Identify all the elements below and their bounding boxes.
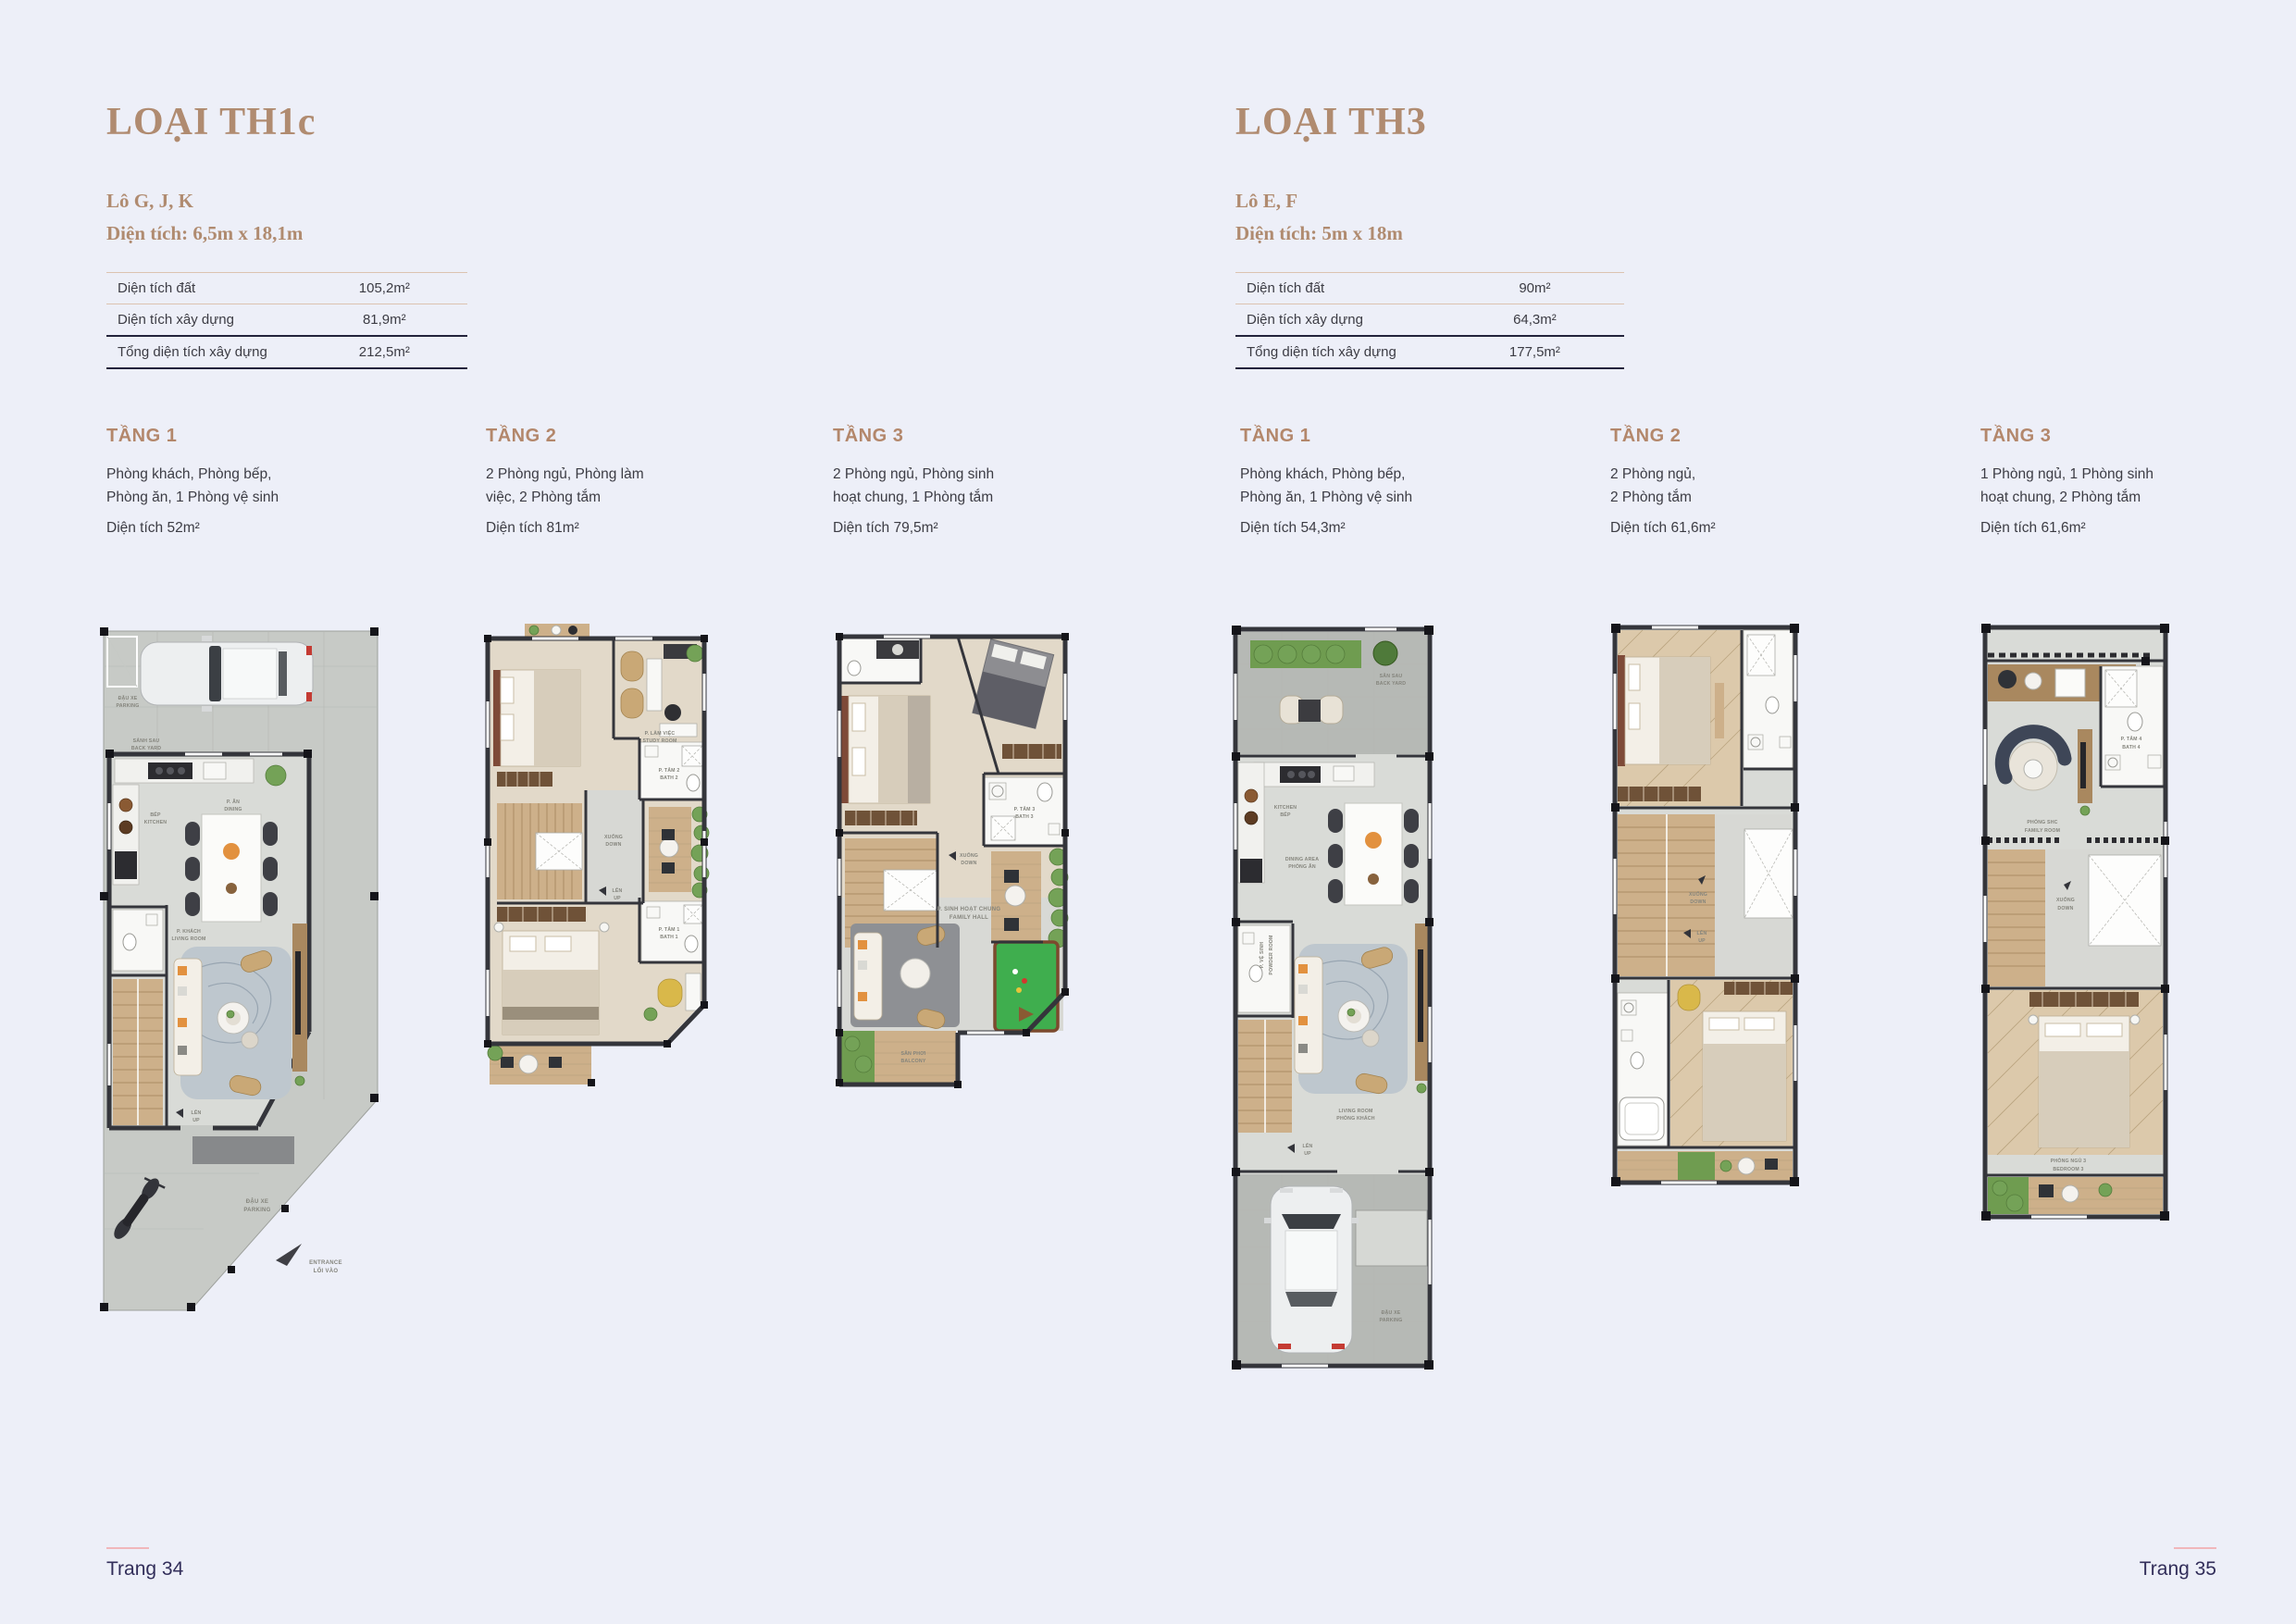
svg-text:PARKING: PARKING	[117, 703, 140, 709]
floor-name: TẦNG 1	[1240, 426, 1490, 447]
row-value: 90m²	[1446, 280, 1624, 296]
rear-balcony	[1618, 1151, 1793, 1181]
svg-text:BATH 4: BATH 4	[2122, 745, 2141, 750]
billiards-table	[995, 942, 1058, 1031]
terrace-mat	[192, 1136, 294, 1164]
floor-plan-th1c-tang2: P. LÀM VIỆC STUDY ROOM P. TẮM 2 BATH 2 X…	[477, 618, 715, 1107]
floor-plan-th3-tang1: SÂN SAU BACK YARD KITCHEN BẾP DINING ARE…	[1226, 618, 1439, 1377]
svg-text:UP: UP	[192, 1118, 200, 1123]
svg-text:UP: UP	[614, 896, 621, 901]
bathroom-1	[1744, 630, 1793, 769]
floor-area: Diện tích 61,6m²	[1610, 520, 1860, 537]
svg-text:BACK YARD: BACK YARD	[131, 746, 161, 751]
up-label: LÊN	[192, 1109, 202, 1116]
section-title-th3: LOẠI TH3	[1235, 100, 1427, 144]
parking-top-label: ĐẬU XE	[118, 695, 138, 701]
svg-text:PARKING: PARKING	[1380, 1318, 1403, 1323]
floor-name: TẦNG 1	[106, 426, 356, 447]
entrance-arrow-icon	[276, 1244, 302, 1266]
table-row: Tổng diện tích xây dựng 212,5m²	[106, 335, 467, 367]
table-row: Tổng diện tích xây dựng 177,5m²	[1235, 335, 1624, 367]
family-hall	[850, 924, 960, 1030]
svg-text:POWDER ROOM: POWDER ROOM	[1269, 935, 1274, 974]
down-label: XUỐNG	[960, 852, 978, 859]
bedroom3-label: PHÒNG NGỦ 3	[2051, 1157, 2087, 1164]
living-room	[174, 947, 292, 1099]
svg-text:FAMILY ROOM: FAMILY ROOM	[2025, 828, 2060, 834]
floor-plan-th3-tang3: P. TẮM 4 BATH 4 PHÒNG SHC FAMILY ROOM XU…	[1976, 618, 2175, 1224]
brochure-spread: LOẠI TH1c Lô G, J, K Diện tích: 6,5m x 1…	[0, 0, 2296, 1624]
svg-text:PARKING: PARKING	[243, 1208, 270, 1213]
svg-text:BATH 3: BATH 3	[1015, 814, 1034, 820]
kitchen-label: BẾP	[150, 812, 161, 818]
up-label: LÊN	[613, 886, 623, 894]
svg-text:UP: UP	[1698, 938, 1706, 944]
tv-cabinet	[1415, 924, 1428, 1093]
plant	[266, 765, 286, 786]
svg-text:DINING: DINING	[224, 807, 242, 812]
svg-text:BALCONY: BALCONY	[900, 1059, 925, 1064]
section-sub-th1c: Lô G, J, K Diện tích: 6,5m x 18,1m	[106, 185, 303, 250]
table-row: Diện tích đất 90m²	[1235, 272, 1624, 304]
footer-accent-line	[106, 1547, 149, 1549]
bath4-label: P. TẮM 4	[2121, 735, 2142, 742]
floor-area: Diện tích 61,6m²	[1980, 520, 2230, 537]
page-number-left: Trang 34	[106, 1558, 183, 1580]
laundry-balcony	[841, 1031, 956, 1083]
family-hall-label: P. SINH HOẠT CHUNG	[937, 907, 1001, 912]
svg-text:DOWN: DOWN	[961, 861, 976, 866]
row-label: Tổng diện tích xây dựng	[1235, 344, 1446, 360]
floor-col-th1c-tang3: TẦNG 3 2 Phòng ngủ, Phòng sinh hoạt chun…	[833, 426, 1083, 537]
bedroom-1	[1618, 630, 1742, 806]
balcony-label: SÂN PHƠI	[900, 1050, 925, 1057]
svg-text:STUDY ROOM: STUDY ROOM	[642, 738, 676, 744]
kitchen-label: KITCHEN	[1274, 805, 1297, 811]
svg-text:PHÒNG KHÁCH: PHÒNG KHÁCH	[1336, 1114, 1374, 1122]
svg-text:DOWN: DOWN	[2057, 906, 2073, 911]
row-value: 81,9m²	[302, 312, 467, 328]
svg-text:PHÒNG ĂN: PHÒNG ĂN	[1288, 862, 1316, 870]
back-yard-label: SÂN SAU	[1380, 673, 1403, 679]
floor-desc: 2 Phòng ngủ, 2 Phòng tắm	[1610, 463, 1860, 509]
table-row: Diện tích xây dựng 64,3m²	[1235, 304, 1624, 335]
floor-name: TẦNG 2	[1610, 426, 1860, 447]
floor-col-th1c-tang1: TẦNG 1 Phòng khách, Phòng bếp, Phòng ăn,…	[106, 426, 356, 537]
parking-label: ĐẬU XE	[1382, 1309, 1401, 1316]
floor-name: TẦNG 3	[833, 426, 1083, 447]
row-label: Diện tích xây dựng	[1235, 312, 1446, 328]
bedroom-2	[1670, 980, 1793, 1147]
floor-col-th3-tang1: TẦNG 1 Phòng khách, Phòng bếp, Phòng ăn,…	[1240, 426, 1490, 537]
floor-plan-th1c-tang3: P. TẮM 3 BATH 3 XUỐNG DOWN P. SINH HOẠT …	[828, 618, 1080, 1097]
floor-name: TẦNG 2	[486, 426, 736, 447]
svg-text:FAMILY HALL: FAMILY HALL	[949, 915, 988, 921]
floor-col-th3-tang3: TẦNG 3 1 Phòng ngủ, 1 Phòng sinh hoạt ch…	[1980, 426, 2230, 537]
section-title-th1c: LOẠI TH1c	[106, 100, 316, 144]
row-value: 177,5m²	[1446, 344, 1624, 360]
living-label: LIVING ROOM	[1338, 1109, 1372, 1114]
floor-plan-th3-tang2: XUỐNG DOWN LÊN UP	[1606, 618, 1805, 1215]
floor-desc: 2 Phòng ngủ, Phòng sinh hoạt chung, 1 Ph…	[833, 463, 1083, 509]
table-row: Diện tích đất 105,2m²	[106, 272, 467, 304]
family-room-label: PHÒNG SHC	[2027, 818, 2057, 825]
side-balcony	[991, 849, 1068, 948]
powder-room	[113, 910, 163, 971]
row-label: Diện tích đất	[1235, 280, 1446, 296]
floor-col-th3-tang2: TẦNG 2 2 Phòng ngủ, 2 Phòng tắm Diện tíc…	[1610, 426, 1860, 537]
row-value: 64,3m²	[1446, 312, 1624, 328]
floor-col-th1c-tang2: TẦNG 2 2 Phòng ngủ, Phòng làm việc, 2 Ph…	[486, 426, 736, 537]
row-label: Tổng diện tích xây dựng	[106, 344, 302, 360]
top-balcony	[525, 624, 590, 637]
row-label: Diện tích đất	[106, 280, 302, 296]
staircase	[1988, 849, 2163, 986]
row-label: Diện tích xây dựng	[106, 312, 302, 328]
bath1-label: P. TẮM 1	[659, 925, 680, 933]
bottom-balcony	[488, 1044, 591, 1085]
rear-balcony	[1988, 1177, 2163, 1214]
footer-accent-line	[2174, 1547, 2216, 1549]
up-label: LÊN	[1303, 1142, 1313, 1149]
svg-text:DOWN: DOWN	[605, 842, 621, 848]
svg-text:BATH 2: BATH 2	[660, 775, 678, 781]
staircase	[113, 979, 163, 1125]
spec-table-th1c: Diện tích đất 105,2m² Diện tích xây dựng…	[106, 272, 467, 369]
floor-desc: Phòng khách, Phòng bếp, Phòng ăn, 1 Phòn…	[1240, 463, 1490, 509]
svg-text:BEDROOM 3: BEDROOM 3	[2053, 1167, 2083, 1172]
floor-area: Diện tích 79,5m²	[833, 520, 1083, 537]
parking-label: ĐẬU XE	[246, 1198, 268, 1205]
dining-table	[1328, 803, 1419, 905]
car	[1264, 1186, 1359, 1353]
dining-label: P. ĂN	[227, 799, 240, 805]
dimensions-label: Diện tích: 6,5m x 18,1m	[106, 217, 303, 250]
svg-text:LỐI VÀO: LỐI VÀO	[314, 1268, 339, 1274]
svg-text:BẾP: BẾP	[1280, 812, 1291, 818]
floor-plan-th1c-tang1: ĐẬU XE PARKING SẢNH SAU BACK YARD BẾP KI…	[93, 618, 389, 1327]
floor-area: Diện tích 52m²	[106, 520, 356, 537]
svg-text:DOWN: DOWN	[1690, 899, 1706, 905]
row-value: 105,2m²	[302, 280, 467, 296]
floor-name: TẦNG 3	[1980, 426, 2230, 447]
bedroom-3	[1988, 990, 2163, 1155]
floor-desc: 2 Phòng ngủ, Phòng làm việc, 2 Phòng tắm	[486, 463, 736, 509]
table-row: Diện tích xây dựng 81,9m²	[106, 304, 467, 335]
row-value: 212,5m²	[302, 344, 467, 360]
svg-text:LIVING ROOM: LIVING ROOM	[171, 936, 205, 942]
powder-label: P. VỆ SINH	[1258, 942, 1265, 968]
bathroom-4	[2101, 666, 2163, 787]
svg-text:UP: UP	[1304, 1151, 1311, 1157]
study-label: P. LÀM VIỆC	[645, 729, 676, 737]
floor-area: Diện tích 54,3m²	[1240, 520, 1490, 537]
svg-text:BATH 1: BATH 1	[660, 935, 678, 940]
living-room	[1295, 944, 1408, 1095]
down-label: XUỐNG	[2056, 897, 2075, 903]
lot-label: Lô G, J, K	[106, 185, 303, 217]
floor-desc: 1 Phòng ngủ, 1 Phòng sinh hoạt chung, 2 …	[1980, 463, 2230, 509]
entrance-label: ENTRANCE	[309, 1260, 342, 1266]
bath2-label: P. TẮM 2	[659, 766, 680, 774]
down-label: XUỐNG	[604, 834, 623, 840]
bathroom-small	[841, 638, 921, 683]
section-sub-th3: Lô E, F Diện tích: 5m x 18m	[1235, 185, 1403, 250]
car	[141, 636, 313, 712]
living-label: P. KHÁCH	[177, 928, 201, 935]
tv-cabinet	[292, 924, 307, 1085]
spec-table-th3: Diện tích đất 90m² Diện tích xây dựng 64…	[1235, 272, 1624, 369]
bath3-label: P. TẮM 3	[1014, 805, 1036, 812]
dining-table	[185, 814, 278, 922]
svg-text:KITCHEN: KITCHEN	[144, 820, 168, 825]
page-number-right: Trang 35	[2140, 1558, 2216, 1580]
footer-left: Trang 34	[106, 1547, 183, 1581]
floor-desc: Phòng khách, Phòng bếp, Phòng ăn, 1 Phòn…	[106, 463, 356, 509]
back-yard	[1238, 632, 1427, 754]
down-label: XUỐNG	[1689, 891, 1707, 898]
up-label: LÊN	[1697, 929, 1707, 936]
staircase	[497, 803, 582, 899]
floor-area: Diện tích 81m²	[486, 520, 736, 537]
bathroom-2	[1618, 993, 1669, 1146]
footer-right: Trang 35	[2140, 1547, 2216, 1581]
side-balcony	[649, 807, 709, 898]
back-yard-label: SẢNH SAU	[133, 738, 160, 744]
staircase	[1238, 1020, 1292, 1133]
lot-label: Lô E, F	[1235, 185, 1403, 217]
dining-label: DINING AREA	[1285, 857, 1319, 862]
svg-text:BACK YARD: BACK YARD	[1376, 681, 1406, 687]
dimensions-label: Diện tích: 5m x 18m	[1235, 217, 1403, 250]
